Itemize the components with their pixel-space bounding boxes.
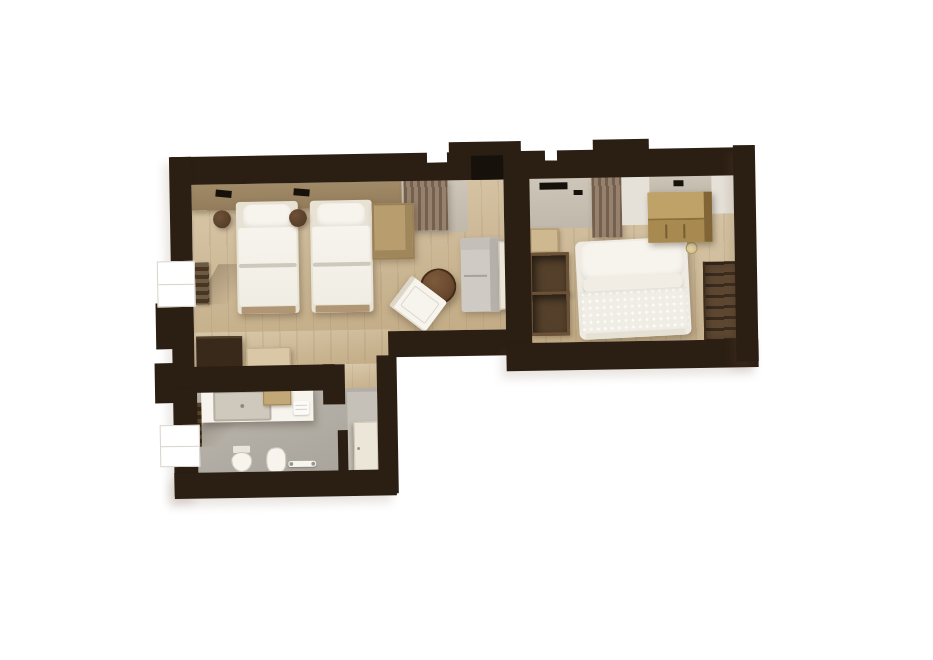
pillow [243, 204, 291, 229]
step-shelf [530, 228, 558, 252]
wall-stub [323, 364, 346, 404]
sofa [460, 237, 501, 312]
sofa-armrest [460, 238, 489, 251]
wall-notch [545, 148, 557, 160]
corner-wall-face [711, 173, 734, 213]
wall-socket [574, 190, 583, 195]
towel-bar [288, 461, 316, 467]
render-canvas [0, 0, 933, 660]
toilet-bowl [231, 452, 252, 472]
window-twin-bedroom [157, 261, 196, 308]
wall-entry-bump [449, 141, 521, 156]
dresser-side [704, 192, 713, 242]
toilet [231, 446, 252, 472]
dresser-drawers [648, 220, 704, 243]
wall-window-bump [593, 139, 649, 154]
dresser-top [648, 192, 704, 221]
towel-shelf [263, 389, 291, 405]
reading-light-recess [293, 188, 310, 196]
bedroom-curtain [591, 175, 622, 238]
wall-niche-partition [338, 430, 349, 472]
desk [372, 203, 415, 260]
wall-bathroom-right [376, 355, 398, 493]
wall-right [733, 145, 759, 361]
pillow [317, 203, 365, 228]
duvet [312, 226, 371, 305]
radiator [195, 262, 210, 304]
wall-shelving [703, 261, 738, 342]
bedroom-wall-panel [621, 175, 650, 225]
sofa-cushion-seam [464, 275, 487, 277]
open-wardrobe [529, 252, 570, 297]
wall-room-divider [503, 151, 533, 355]
reading-light-recess [215, 190, 232, 198]
bed-foot [316, 305, 370, 313]
wall-notch [427, 150, 447, 162]
wall-bathroom-bottom [174, 469, 396, 499]
bed-foot [242, 306, 296, 314]
bathroom-door [354, 422, 379, 472]
floor-plan [0, 0, 933, 660]
entrance-door [471, 155, 503, 180]
twin-bed [310, 200, 374, 313]
wall-left-bump [155, 303, 174, 349]
duvet [238, 227, 297, 306]
wall-tv [539, 182, 567, 189]
wall-bedroom-bottom [506, 339, 758, 371]
dresser [648, 192, 713, 243]
window-bathroom [160, 425, 201, 468]
bidet [266, 447, 286, 473]
duvet [579, 286, 689, 334]
towel [293, 401, 309, 415]
wall-left-bump [155, 363, 176, 403]
wall-vent [673, 180, 683, 186]
double-bed [575, 236, 692, 340]
open-wardrobe [529, 291, 570, 336]
